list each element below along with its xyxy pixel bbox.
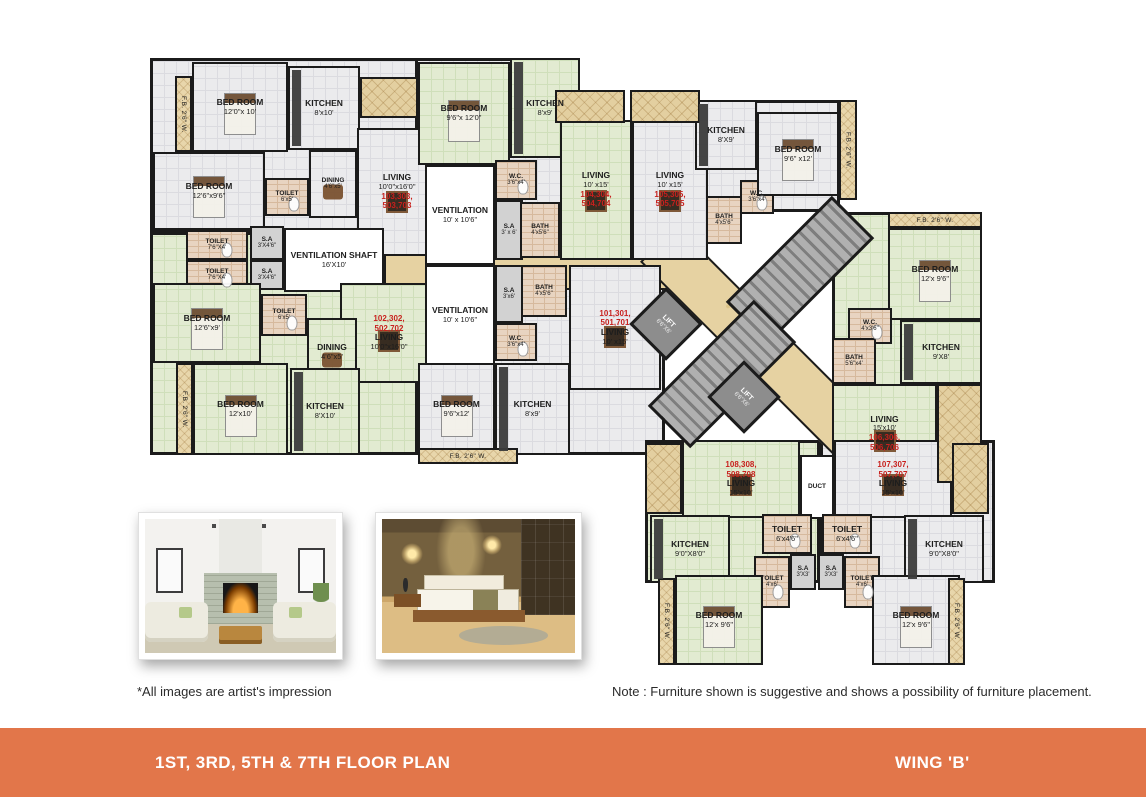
toilet-108-1-dims: 6'x4'6": [776, 535, 798, 544]
balcony-103: [360, 77, 418, 118]
kitchen-101: KITCHEN8'x9': [495, 363, 570, 455]
flowerbed-108: [645, 443, 682, 514]
wall-art-left: [156, 548, 183, 592]
toilet-103-name: TOILET: [276, 190, 299, 197]
balcony-105: [630, 90, 700, 123]
wc-105-name: W.C.: [750, 190, 764, 197]
toilet-108-1: TOILET6'x4'6": [762, 514, 812, 554]
living-103-units: 103,303, 503,703: [381, 192, 412, 211]
wc-106-name: W.C.: [863, 319, 877, 326]
dining-102-dims: 4'6"x5': [321, 353, 343, 362]
floor-plan-title: 1ST, 3RD, 5TH & 7TH FLOOR PLAN: [155, 753, 450, 773]
sa-upper-1-name: S.A: [262, 236, 273, 243]
bath-106-dims: 5'6"x4': [845, 361, 862, 368]
sa-104-name: S.A: [504, 223, 515, 230]
living-105-units: 105,305, 505,705: [654, 190, 685, 209]
bath-104-name: BATH: [531, 223, 549, 230]
bath-101-name: BATH: [535, 284, 553, 291]
fb-left-bottom: F.B. 2'6" W.: [176, 363, 193, 455]
wc-101-dims: 3'6"x4': [507, 342, 524, 349]
counter-icon: [499, 367, 508, 451]
fb-right-top: F.B. 2'6" W.: [888, 212, 982, 228]
toilet-upper-1: TOILET7'6"X4': [186, 230, 248, 260]
bath-101: BATH4'x5'6": [521, 265, 567, 317]
wc-101: W.C.3'6"x4': [495, 323, 537, 361]
sofa-right: [273, 602, 336, 642]
kitchen-105-dims: 8'X9': [718, 136, 734, 145]
toilet-107-1-dims: 6'x4'6": [836, 535, 858, 544]
wc-101-name: W.C.: [509, 335, 523, 342]
sa-101-name: S.A: [504, 287, 515, 294]
living-102-units: 102,302, 502,702: [373, 314, 404, 333]
fb-top-right-label: F.B. 2'6" W.: [845, 132, 852, 169]
bedroom-scene: [382, 519, 575, 653]
kitchen-106-dims: 9'X8': [933, 353, 949, 362]
toilet-108-2-name: TOILET: [761, 575, 784, 582]
toilet-upper-1-dims: 7'6"X4': [208, 245, 226, 252]
living-103-dims: 10'0"x16'0": [379, 183, 416, 192]
fb-bottom-left: F.B. 2'6" W.: [658, 578, 675, 665]
counter-icon: [654, 519, 663, 579]
toilet-102: TOILET6'x5': [261, 294, 307, 336]
bedroom-101-dims: 9'6"x12': [444, 410, 470, 419]
balcony-104: [555, 90, 625, 123]
kitchen-102-dims: 8'X10': [315, 412, 335, 421]
bedroom-103-1-dims: 12'0"x 10': [224, 108, 256, 117]
vase: [403, 578, 408, 592]
living-104-units: 104,304, 504,704: [580, 190, 611, 209]
sa-104-dims: 3' x 6': [501, 230, 516, 237]
toilet-103-dims: 6'x5': [281, 197, 293, 204]
bedroom-104: BED ROOM9'6"x 12'0": [418, 62, 510, 165]
living-101-units: 101,301, 501,701: [599, 309, 630, 328]
bedroom-108-dims: 12'x 9'6": [705, 621, 733, 630]
kitchen-106: KITCHEN9'X8': [900, 320, 982, 384]
living-105-dims: 10' x15': [657, 181, 682, 190]
images-disclaimer: *All images are artist's impression: [137, 684, 332, 699]
living-108-units: 108,308, 508,708: [725, 460, 756, 479]
duct: DUCT: [800, 455, 834, 519]
flowerbed-107: [952, 443, 989, 514]
fireplace-fire: [223, 583, 257, 612]
footer-bar: 1ST, 3RD, 5TH & 7TH FLOOR PLAN WING 'B': [0, 728, 1146, 797]
dining-103: DINING4'6"x5': [309, 150, 357, 218]
wc-104: W.C.3'6"x4': [495, 160, 537, 200]
living-room-photo: [138, 512, 343, 660]
sa-107: S.A3'X3': [818, 554, 844, 590]
wall-sconce-right: [482, 535, 502, 555]
living-room-scene: [145, 519, 336, 653]
wc-106-dims: 4'x3'6": [861, 326, 878, 333]
sa-upper-2-dims: 3'X4'6": [258, 275, 276, 282]
kitchen-108: KITCHEN9'0"X8'0": [650, 515, 730, 583]
ventilation-shaft-dims: 16'X10': [322, 261, 347, 270]
wc-105-dims: 3'6"x4': [748, 197, 765, 204]
toilet-108-2-dims: 4'x6': [766, 582, 778, 589]
living-104: LIVING10' x15'104,304, 504,704: [560, 120, 632, 260]
fb-bottom-right: F.B. 2'6" W.: [948, 578, 965, 665]
bedroom-102-2: BED ROOM12'x10': [193, 363, 288, 455]
bath-105-name: BATH: [715, 213, 733, 220]
floor-plan: BED ROOM12'0"x 10'KITCHEN8'x10'BED ROOM1…: [0, 0, 1146, 800]
dining-103-dims: 4'6"x5': [324, 184, 341, 191]
living-108-dims: 15'x10': [729, 489, 752, 498]
bath-105: BATH4'x5'6": [706, 196, 742, 244]
bedroom-photo: [375, 512, 582, 660]
counter-icon: [292, 70, 301, 146]
wall-sconce-left: [401, 543, 423, 565]
wc-104-name: W.C.: [509, 173, 523, 180]
side-table: [394, 594, 421, 607]
living-108: 108,308, 508,708LIVING15'x10': [682, 440, 800, 518]
bedroom-106-dims: 12'x 9'6": [921, 275, 949, 284]
bedroom-105-dims: 9'6" x12': [784, 155, 812, 164]
bedroom-103-1: BED ROOM12'0"x 10': [192, 62, 288, 152]
ventilation-2-dims: 10' x 10'6": [443, 316, 477, 325]
kitchen-103-dims: 8'x10': [314, 109, 333, 118]
coffee-table: [219, 626, 261, 639]
kitchen-104-dims: 8'x9': [538, 109, 553, 118]
bedroom-102-1-dims: 12'6"x9': [194, 324, 220, 333]
counter-icon: [514, 62, 523, 154]
toilet-107-1: TOILET6'x4'6": [822, 514, 872, 554]
toilet-107-2-name: TOILET: [851, 575, 874, 582]
sa-107-name: S.A: [826, 565, 837, 572]
kitchen-107-dims: 9'0"X8'0": [929, 550, 959, 559]
sa-107-dims: 3'X3': [825, 572, 838, 579]
fb-bottom-left-label: F.B. 2'6" W.: [663, 603, 670, 640]
living-104-dims: 10' x15': [583, 181, 608, 190]
toilet-107-2-dims: 4'x6': [856, 582, 868, 589]
living-107-dims: 15'x10': [881, 489, 904, 498]
bedroom-105: BED ROOM9'6" x12': [757, 112, 839, 196]
bath-101-dims: 4'x5'6": [535, 291, 552, 298]
sa-108-dims: 3'X3': [797, 572, 810, 579]
kitchen-107: KITCHEN9'0"X8'0": [904, 515, 984, 583]
bedroom-106: BED ROOM12'x 9'6": [888, 228, 982, 320]
bedroom-103-2-dims: 12'6"x9'6": [193, 192, 226, 201]
toilet-upper-1-name: TOILET: [206, 238, 229, 245]
sa-104: S.A3' x 6': [495, 200, 523, 260]
living-106-units: 106,306, 506,706: [869, 433, 900, 452]
wing-label: WING 'B': [895, 753, 970, 773]
sa-101: S.A3'x6': [495, 265, 523, 323]
bedroom-102-1: BED ROOM12'6"x9': [153, 283, 261, 363]
sa-upper-2-name: S.A: [262, 268, 273, 275]
wc-104-dims: 3'6"x4': [507, 180, 524, 187]
living-101-dims: 10' x15': [602, 338, 627, 347]
fb-left-top-label: F.B. 2'6" W.: [180, 96, 187, 133]
living-102-dims: 10'0"x16'0": [371, 343, 408, 352]
counter-icon: [908, 519, 917, 579]
kitchen-108-dims: 9'0"X8'0": [675, 550, 705, 559]
toilet-102-name: TOILET: [273, 308, 296, 315]
bedroom-108: BED ROOM12'x 9'6": [675, 575, 763, 665]
toilet-upper-2-dims: 7'6"X4': [208, 275, 226, 282]
toilet-103: TOILET6'x5': [265, 178, 309, 216]
counter-icon: [294, 372, 303, 451]
kitchen-105: KITCHEN8'X9': [695, 100, 757, 170]
fb-bottom-right-label: F.B. 2'6" W.: [953, 603, 960, 640]
bed-platform: [413, 610, 525, 622]
bath-106: BATH5'6"x4': [832, 338, 876, 384]
wardrobe: [521, 519, 575, 615]
rug: [459, 626, 548, 645]
sa-upper-1-dims: 3'X4'6": [258, 243, 276, 250]
ventilation-1: VENTILATION10' x 10'6": [425, 165, 495, 265]
cushion-left: [179, 607, 192, 618]
counter-icon: [904, 324, 913, 380]
duct-name: DUCT: [808, 483, 826, 490]
sa-108-name: S.A: [798, 565, 809, 572]
bath-104-dims: 4'x5'6": [531, 230, 548, 237]
living-106-dims: 15'x10': [873, 424, 896, 433]
sa-upper-1: S.A3'X4'6": [250, 226, 284, 260]
ventilation-1-dims: 10' x 10'6": [443, 216, 477, 225]
bedroom-101: BED ROOM9'6"x12': [418, 363, 495, 455]
toilet-upper-2-name: TOILET: [206, 268, 229, 275]
sofa-left: [145, 602, 208, 642]
dining-103-name: DINING: [322, 177, 345, 184]
bedroom-104-dims: 9'6"x 12'0": [447, 114, 482, 123]
sa-101-dims: 3'x6': [503, 294, 515, 301]
toilet-102-dims: 6'x5': [278, 315, 290, 322]
fb-center-bottom-label: F.B. 2'6" W.: [450, 453, 487, 460]
brochure-page: BED ROOM12'0"x 10'KITCHEN8'x10'BED ROOM1…: [0, 0, 1146, 800]
kitchen-103: KITCHEN8'x10': [288, 66, 360, 150]
kitchen-102: KITCHEN8'X10': [290, 368, 360, 455]
kitchen-101-dims: 8'x9': [525, 410, 540, 419]
ventilation-2: VENTILATION10' x 10'6": [425, 265, 495, 365]
bath-105-dims: 4'x5'6": [715, 220, 732, 227]
furniture-note: Note : Furniture shown is suggestive and…: [612, 684, 1092, 699]
bath-104: BATH4'x5'6": [520, 202, 560, 258]
fb-left-bottom-label: F.B. 2'6" W.: [181, 391, 188, 428]
bedroom-102-2-dims: 12'x10': [229, 410, 252, 419]
living-107-units: 107,307, 507,707: [877, 460, 908, 479]
bedroom-107: BED ROOM12'x 9'6": [872, 575, 960, 665]
cushion-right: [289, 607, 302, 618]
fb-top-right: F.B. 2'6" W.: [839, 100, 857, 200]
fb-right-top-label: F.B. 2'6" W.: [917, 217, 954, 224]
bedroom-103-2: BED ROOM12'6"x9'6": [153, 152, 265, 230]
bath-106-name: BATH: [845, 354, 863, 361]
fb-left-top: F.B. 2'6" W.: [175, 76, 192, 152]
sa-108: S.A3'X3': [790, 554, 816, 590]
bedroom-107-dims: 12'x 9'6": [902, 621, 930, 630]
